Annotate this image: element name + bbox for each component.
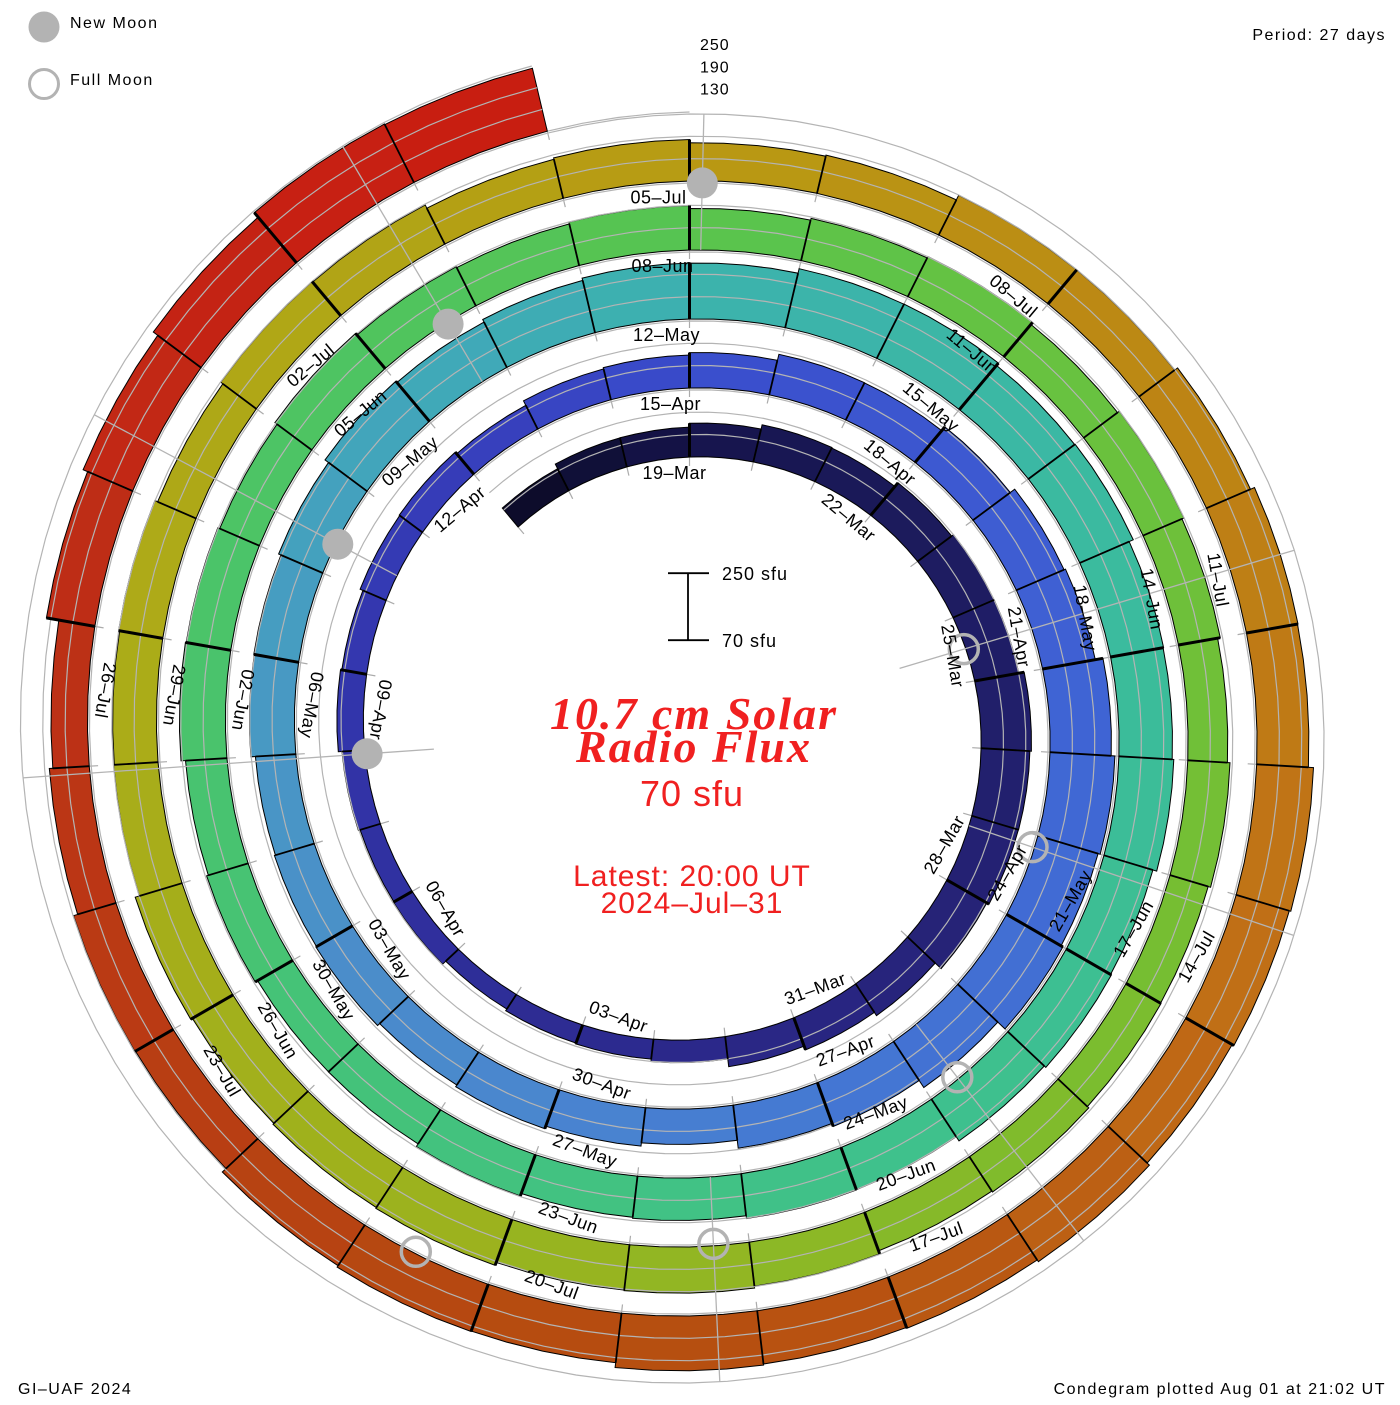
svg-text:130: 130 <box>700 82 730 99</box>
svg-text:08–Jun: 08–Jun <box>631 256 693 276</box>
svg-text:250: 250 <box>700 37 730 54</box>
svg-text:12–May: 12–May <box>633 325 700 345</box>
svg-text:190: 190 <box>700 59 730 76</box>
svg-text:Period: 27 days: Period: 27 days <box>1252 27 1386 44</box>
svg-text:05–Jul: 05–Jul <box>630 187 686 207</box>
svg-text:Radio Flux: Radio Flux <box>575 721 812 772</box>
svg-text:2024–Jul–31: 2024–Jul–31 <box>601 887 784 920</box>
svg-text:New Moon: New Moon <box>70 15 158 32</box>
svg-text:Full Moon: Full Moon <box>70 72 154 89</box>
svg-text:Condegram plotted Aug 01 at 21: Condegram plotted Aug 01 at 21:02 UT <box>1054 1381 1386 1398</box>
svg-text:19–Mar: 19–Mar <box>642 463 706 483</box>
svg-text:GI–UAF 2024: GI–UAF 2024 <box>18 1381 132 1398</box>
svg-text:70 sfu: 70 sfu <box>640 773 744 814</box>
svg-text:15–Apr: 15–Apr <box>640 394 701 414</box>
svg-text:70 sfu: 70 sfu <box>722 631 777 651</box>
svg-text:250 sfu: 250 sfu <box>722 564 788 584</box>
